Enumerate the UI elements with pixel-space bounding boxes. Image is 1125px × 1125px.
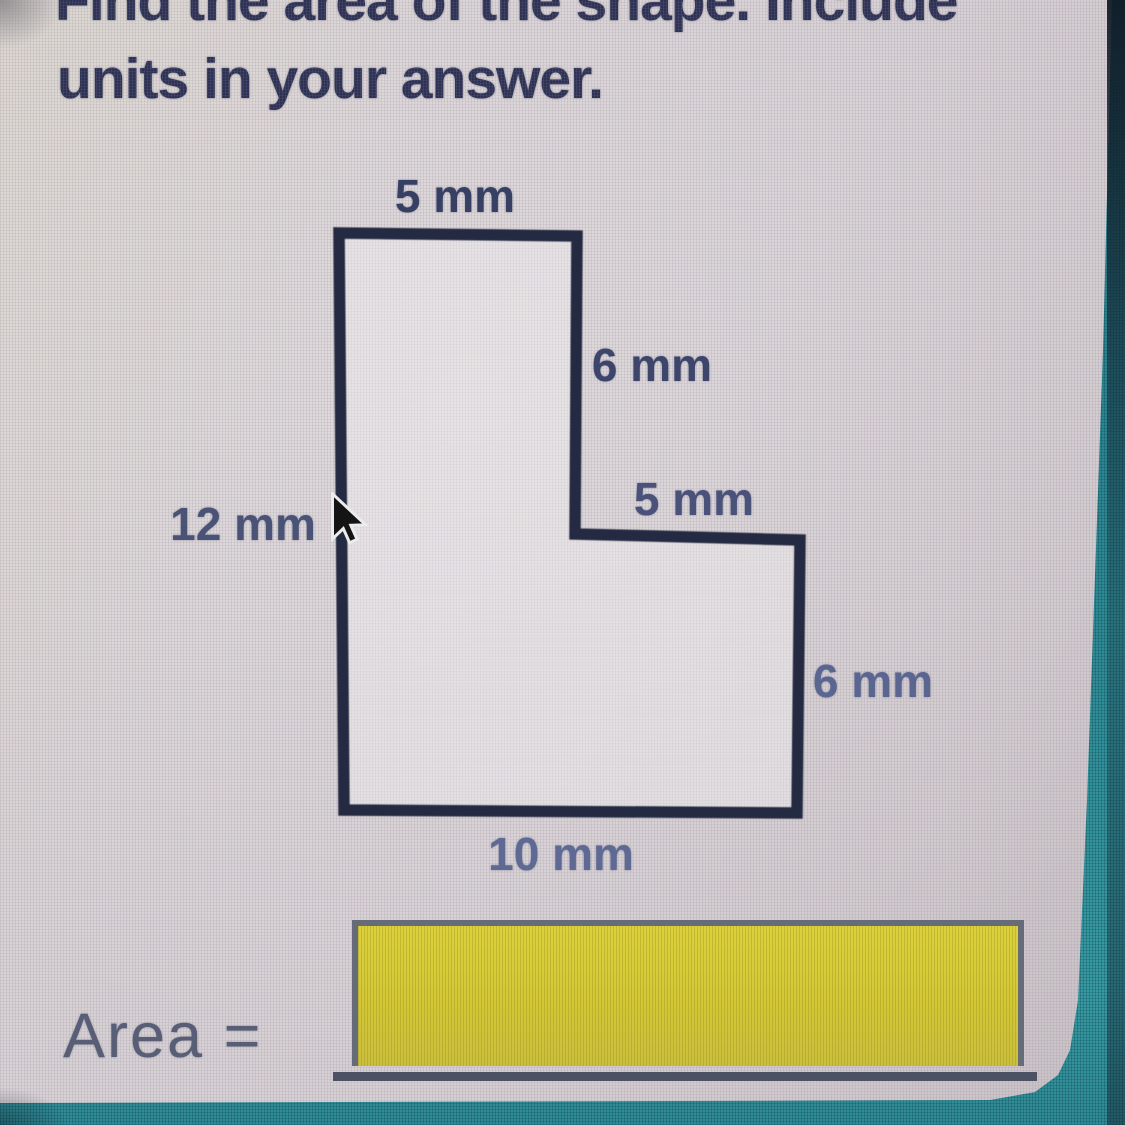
dimension-label-right-upper: 6 mm	[592, 338, 712, 392]
dimension-label-top: 5 mm	[395, 169, 515, 223]
dimension-label-bottom: 10 mm	[488, 827, 634, 881]
dimension-label-left: 12 mm	[170, 497, 316, 551]
dimension-label-step: 5 mm	[634, 472, 754, 526]
question-panel: Find the area of the shape. Include unit…	[0, 0, 1125, 1125]
mouse-cursor-icon	[329, 492, 369, 552]
area-label: Area =	[63, 1000, 262, 1072]
dimension-label-right-lower: 6 mm	[813, 654, 933, 708]
answer-underline	[333, 1072, 1037, 1081]
area-answer-input[interactable]	[352, 920, 1024, 1066]
screen-photo: Find the area of the shape. Include unit…	[0, 0, 1125, 1125]
screen-right-edge	[1107, 0, 1125, 1125]
